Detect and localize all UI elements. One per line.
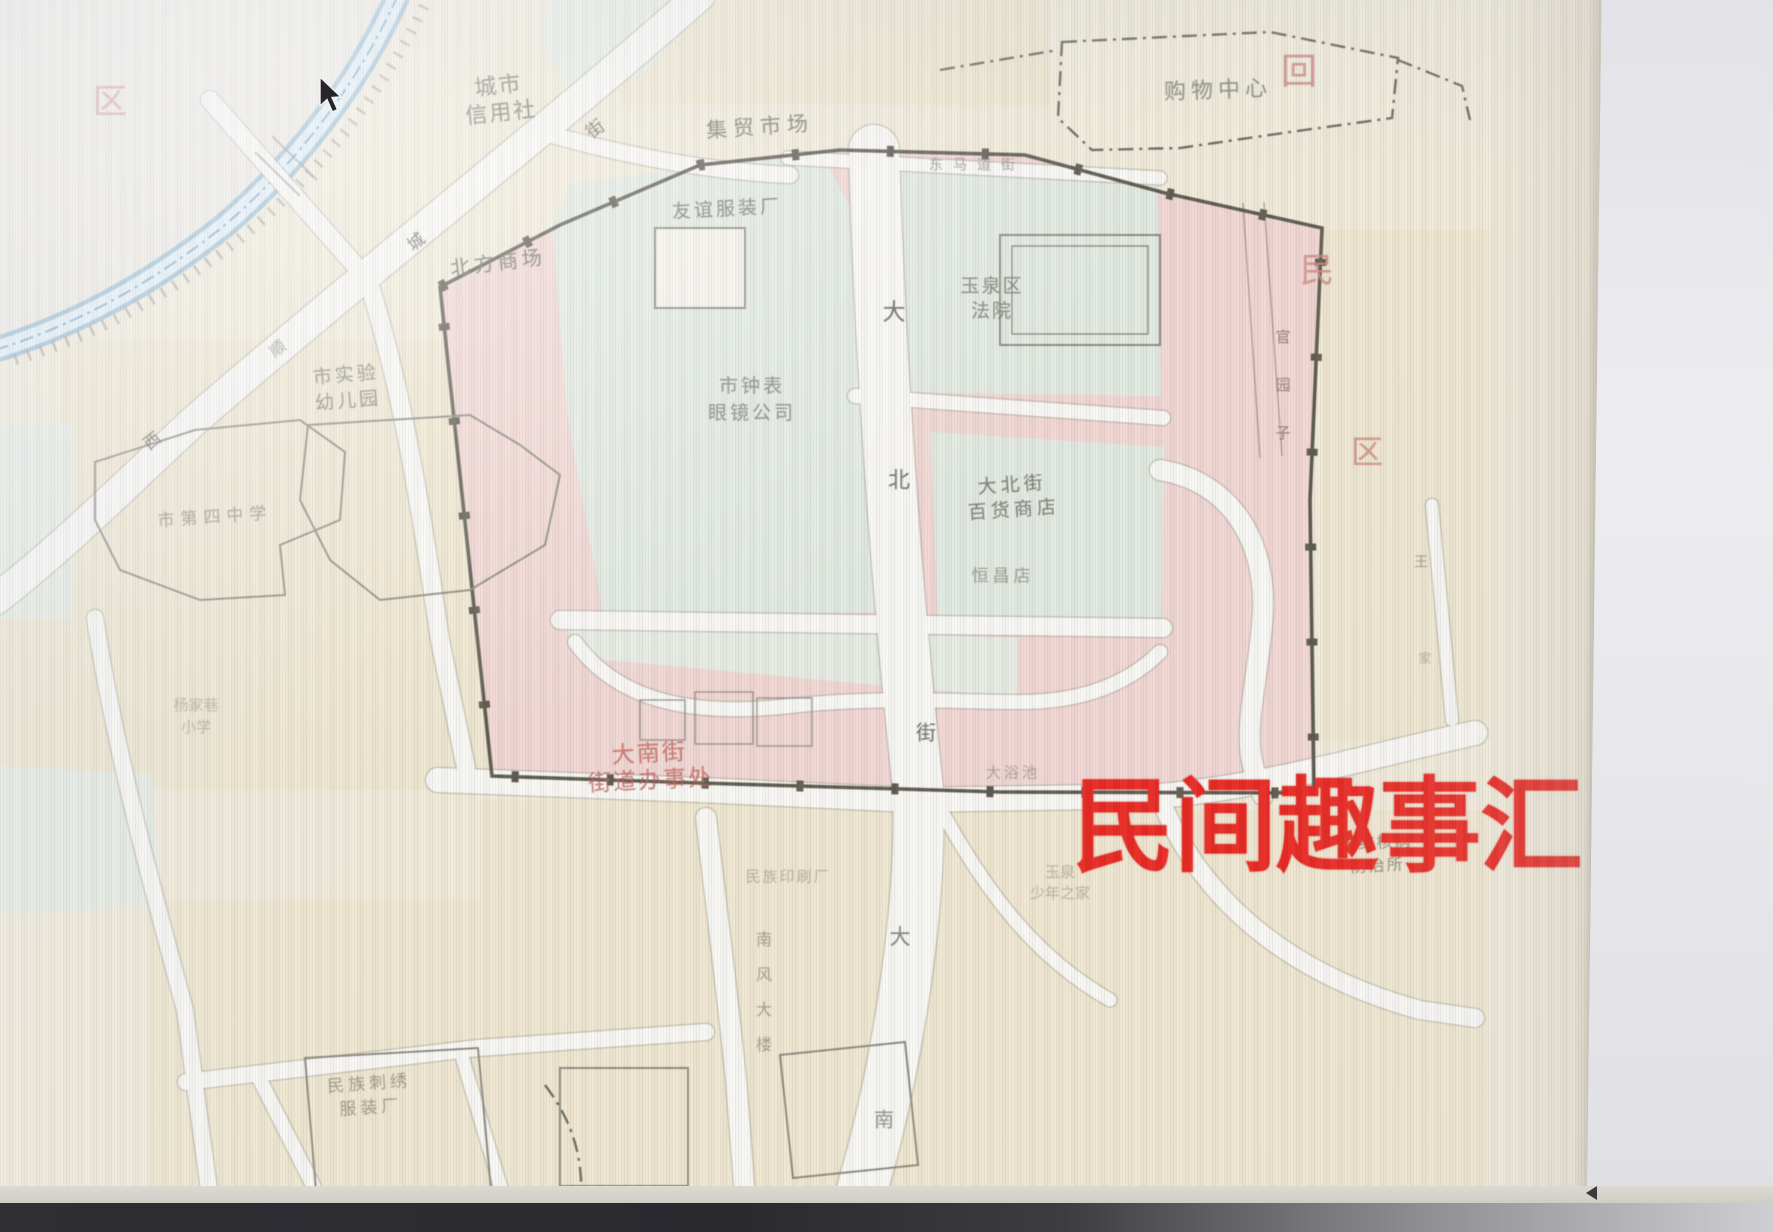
map-area: 城市 信用社街集贸市场购物中心友谊服装厂北方商场城顺西东马道街玉泉区 法院大北街… <box>0 0 1773 1232</box>
paper-edge-bottom <box>0 1186 1773 1204</box>
screen-bezel-bottom <box>0 1203 1773 1232</box>
watermark-text: 民间趣事汇 <box>1072 775 1592 890</box>
city-map-graphic <box>0 0 1773 1232</box>
screen-margin-right <box>1586 0 1773 1232</box>
bezel-arrow-icon <box>1586 1186 1597 1200</box>
screen-photo: 城市 信用社街集贸市场购物中心友谊服装厂北方商场城顺西东马道街玉泉区 法院大北街… <box>0 0 1773 1232</box>
